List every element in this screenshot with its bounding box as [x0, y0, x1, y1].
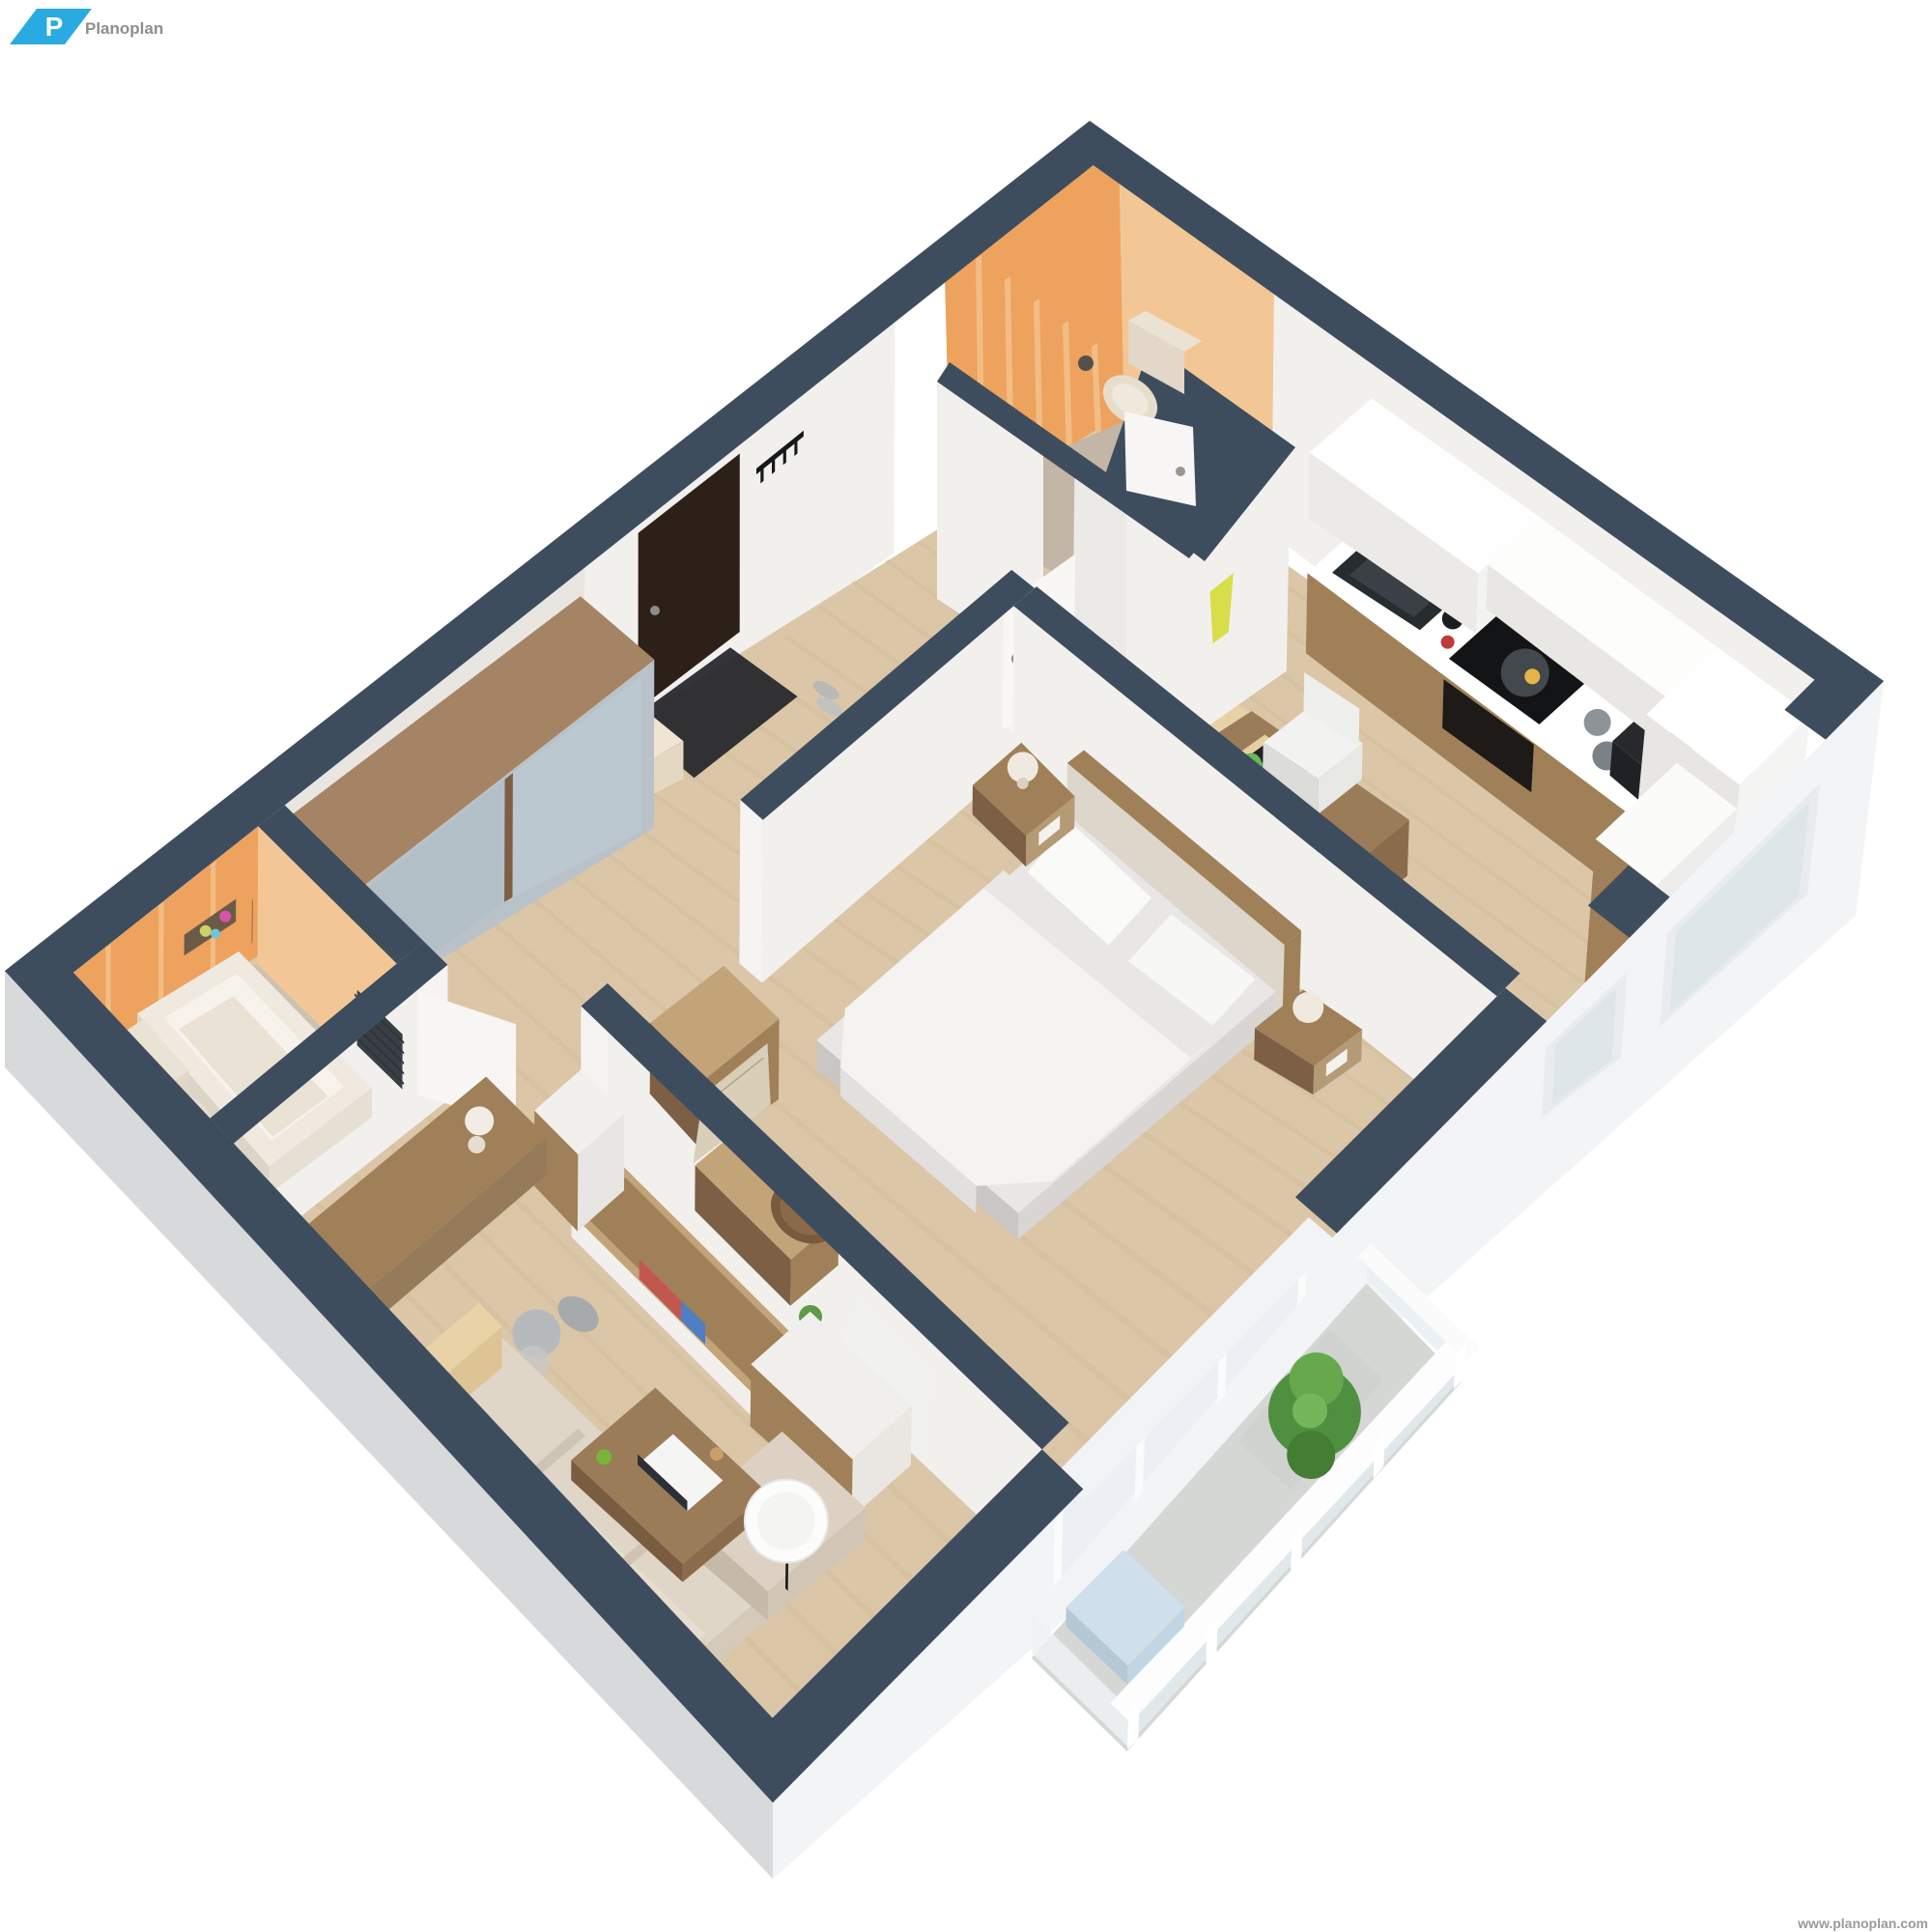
- svg-text:P: P: [45, 12, 64, 42]
- svg-text:Planoplan: Planoplan: [85, 19, 163, 38]
- svg-text:www.planoplan.com: www.planoplan.com: [1797, 1916, 1928, 1931]
